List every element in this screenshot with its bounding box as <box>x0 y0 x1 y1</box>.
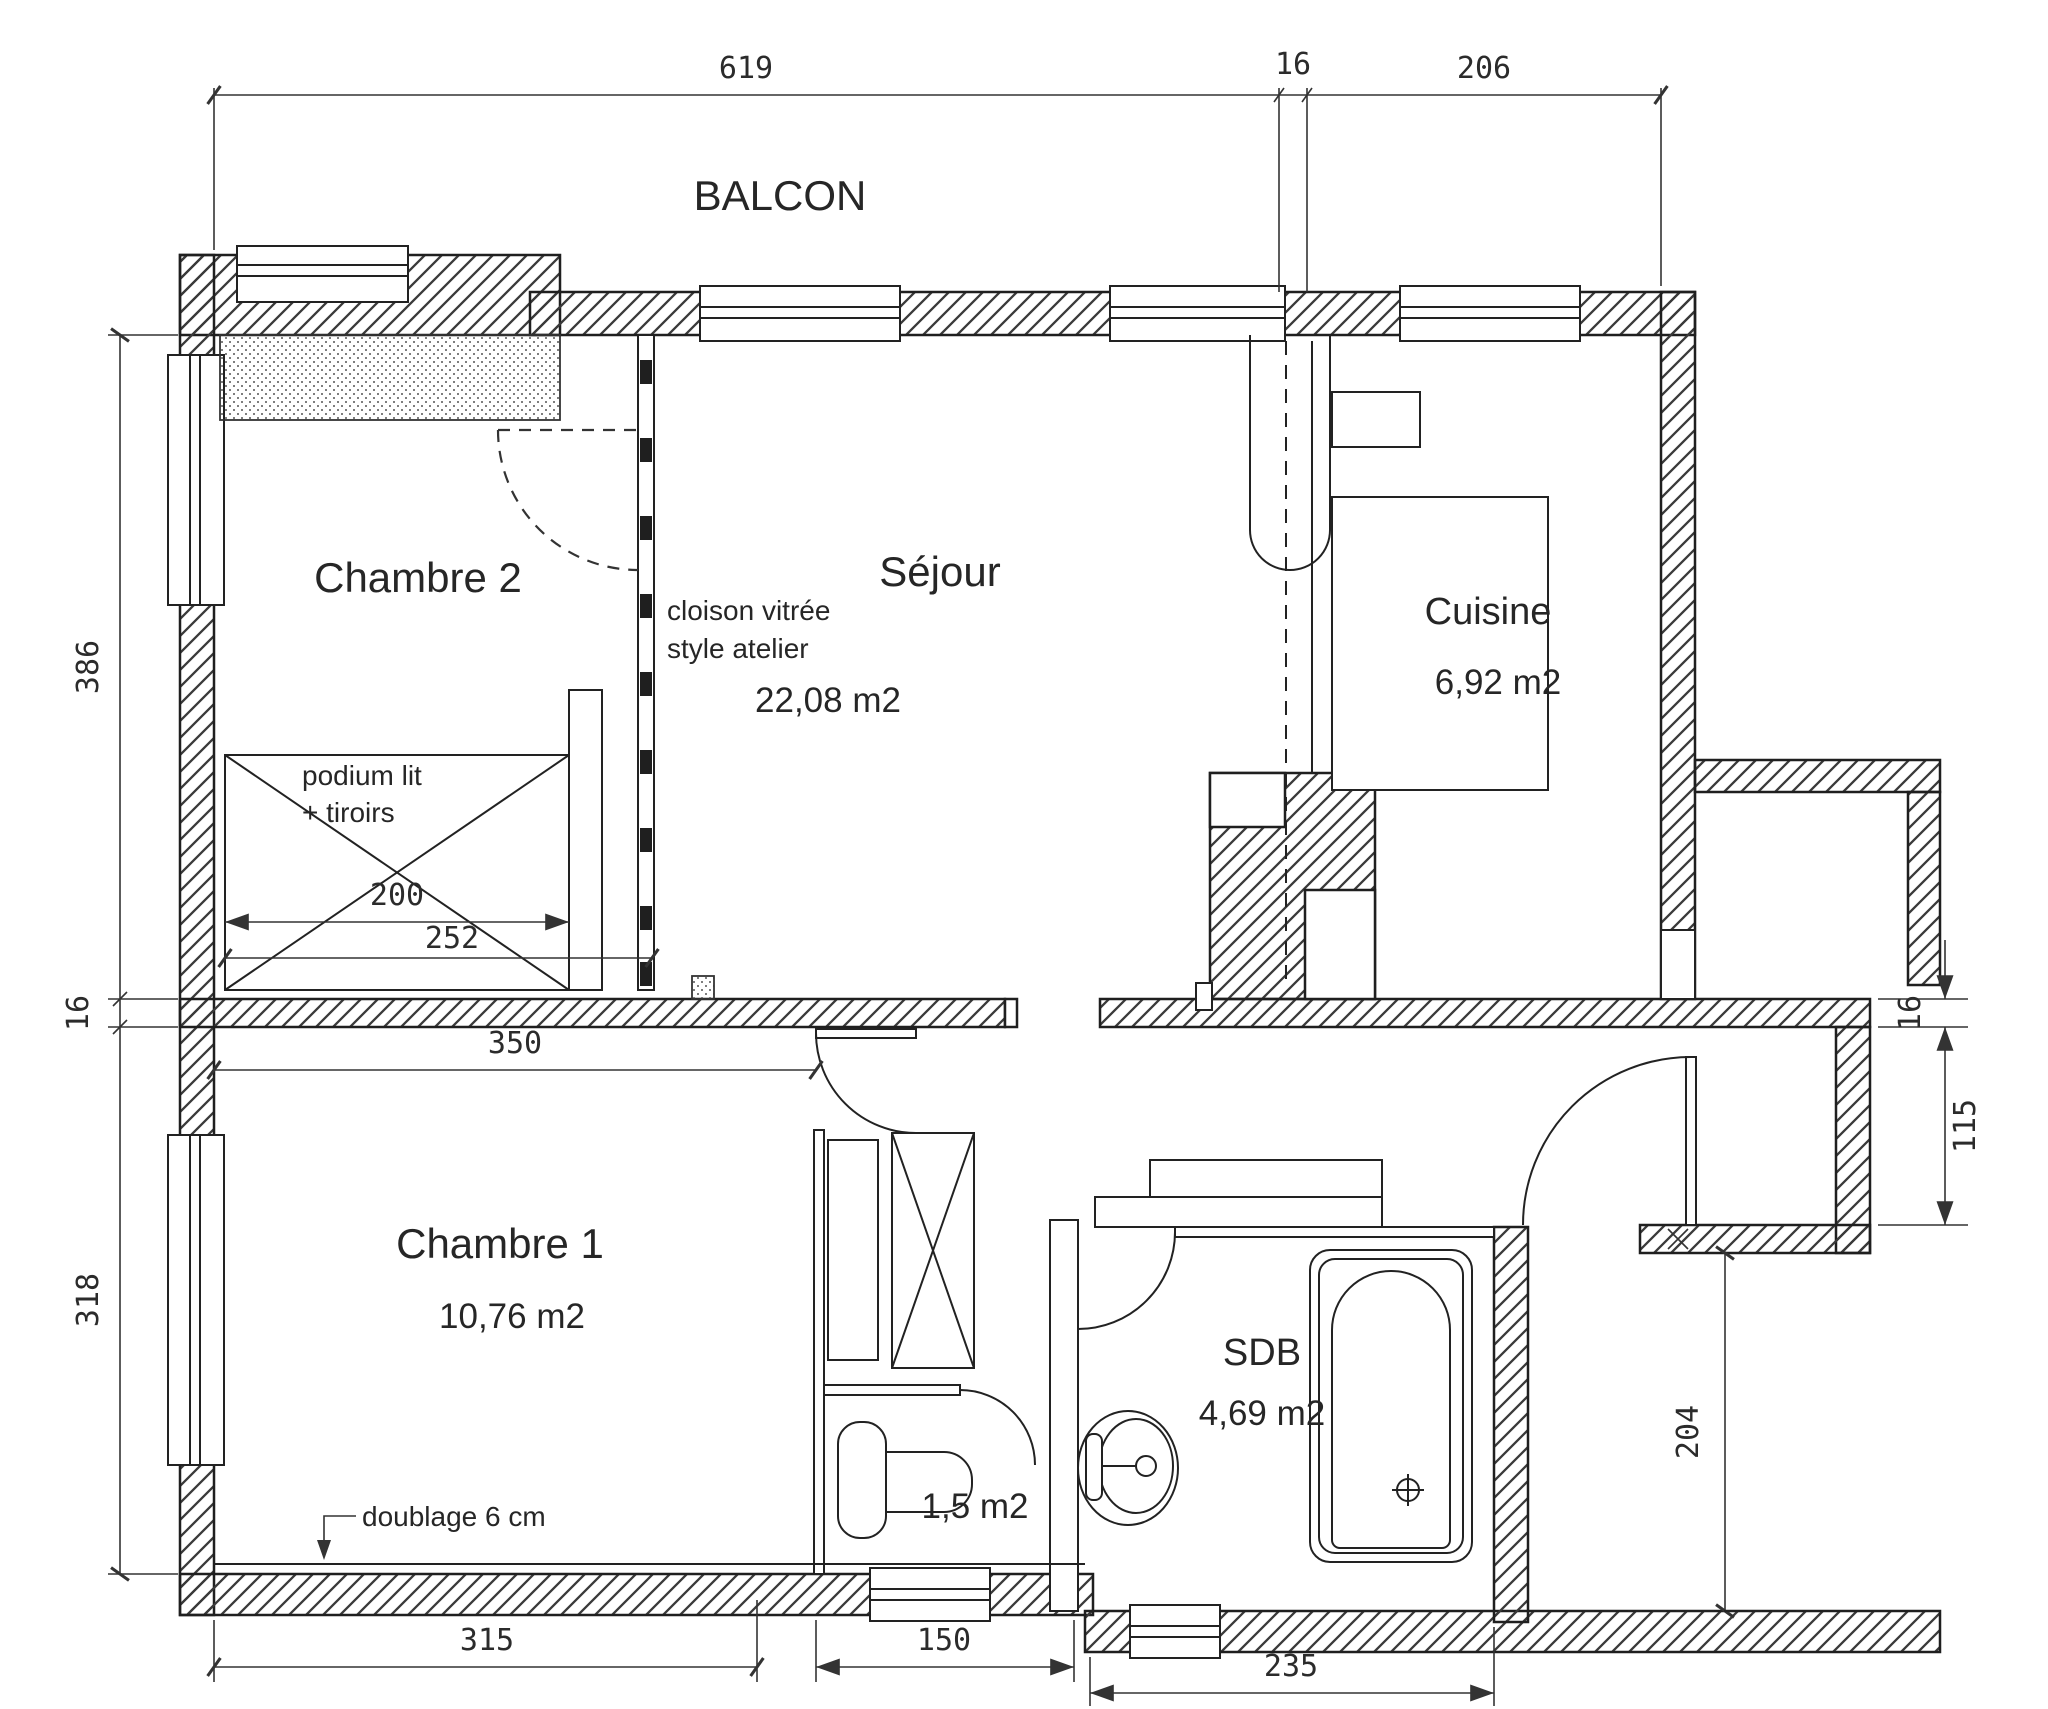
wall-wc-north <box>824 1385 960 1395</box>
doublage-annotation: doublage 6 cm <box>317 1501 546 1560</box>
wall-court-north <box>1695 760 1940 792</box>
glass-partition <box>638 335 654 990</box>
kitchen-block-stub <box>1196 983 1212 1010</box>
area-chambre1: 10,76 m2 <box>439 1297 585 1336</box>
label-sdb: SDB <box>1223 1332 1301 1374</box>
note-podium-2: + tiroirs <box>302 797 395 828</box>
door-chambre1 <box>816 1029 916 1133</box>
dim-top-619: 619 <box>719 51 773 86</box>
podium-return-wall <box>569 690 602 990</box>
note-podium-1: podium lit <box>302 760 422 791</box>
wall-chambre1-east <box>814 1130 824 1574</box>
area-sejour: 22,08 m2 <box>755 681 901 720</box>
area-wc: 1,5 m2 <box>922 1487 1029 1526</box>
wall-sdb-east <box>1494 1227 1528 1622</box>
hall-closet <box>892 1133 974 1368</box>
note-doublage: doublage 6 cm <box>362 1501 546 1532</box>
hall-counter <box>1095 1160 1382 1227</box>
wall-east <box>1661 292 1695 999</box>
dim-left-318: 318 <box>71 1273 106 1327</box>
dim-left-16: 16 <box>61 995 96 1031</box>
area-sdb: 4,69 m2 <box>1199 1394 1325 1433</box>
label-sejour: Séjour <box>879 548 1000 595</box>
dim-left: 386 16 318 <box>61 335 178 1574</box>
wall-end-cap <box>1005 999 1017 1027</box>
dim-top-16: 16 <box>1275 47 1311 82</box>
label-balcon: BALCON <box>694 172 867 219</box>
label-chambre1: Chambre 1 <box>396 1220 604 1267</box>
note-cloison-1: cloison vitrée <box>667 595 830 626</box>
area-cuisine: 6,92 m2 <box>1435 663 1561 702</box>
kitchen-duct <box>1250 335 1330 570</box>
wall-court-east <box>1908 792 1940 985</box>
window-chambre2-west <box>168 355 224 605</box>
wall-niche-south <box>1640 1225 1870 1253</box>
floor-plan-drawing: 619 16 206 386 16 318 350 200 252 <box>0 0 2048 1709</box>
wall-middle-left <box>180 999 1005 1027</box>
dim-right: 16 115 204 <box>1580 940 1983 1611</box>
window-cuisine <box>1400 286 1580 341</box>
window-balcony-door <box>700 286 900 341</box>
label-chambre2: Chambre 2 <box>314 554 522 601</box>
wall-pillar-marker <box>692 976 714 999</box>
hall-cabinet <box>828 1140 878 1360</box>
note-cloison-2: style atelier <box>667 633 809 664</box>
bathtub <box>1310 1250 1472 1562</box>
window-sdb-south <box>1130 1605 1220 1658</box>
door-entry <box>1523 1057 1696 1225</box>
dim-150: 150 <box>917 1623 971 1658</box>
wall-wc-sdb <box>1050 1220 1078 1611</box>
dim-right-16: 16 <box>1893 995 1928 1031</box>
kitchen-block-notch-1 <box>1210 773 1285 827</box>
wall-sdb-north <box>1175 1227 1494 1237</box>
washbasin <box>1078 1411 1178 1525</box>
window-wc-south <box>870 1568 990 1621</box>
dim-235: 235 <box>1264 1649 1318 1684</box>
wall-niche-east <box>1836 1027 1870 1253</box>
label-cuisine: Cuisine <box>1425 591 1552 633</box>
dim-right-115: 115 <box>1948 1099 1983 1153</box>
dim-252: 252 <box>425 921 479 956</box>
floor-plan-sheet: 619 16 206 386 16 318 350 200 252 <box>0 0 2048 1709</box>
dim-315: 315 <box>460 1623 514 1658</box>
dim-200: 200 <box>370 878 424 913</box>
door-sdb <box>1078 1232 1175 1329</box>
east-wall-duct <box>1661 930 1695 999</box>
window-sejour <box>1110 286 1285 341</box>
window-chambre1-west <box>168 1135 224 1465</box>
door-chambre2 <box>498 430 638 570</box>
window-chambre2-north <box>237 246 408 302</box>
wall-middle-right <box>1100 999 1870 1027</box>
kitchen-appliance <box>1332 392 1420 447</box>
dim-right-204: 204 <box>1671 1405 1706 1459</box>
door-wc <box>960 1390 1035 1465</box>
chambre2-closet <box>220 335 560 420</box>
kitchen-counter <box>1332 497 1548 790</box>
kitchen-block-notch-2 <box>1305 890 1375 999</box>
dim-350: 350 <box>488 1026 542 1061</box>
dim-top-206: 206 <box>1457 51 1511 86</box>
dim-left-386: 386 <box>71 640 106 694</box>
dim-350: 350 <box>214 1026 816 1070</box>
